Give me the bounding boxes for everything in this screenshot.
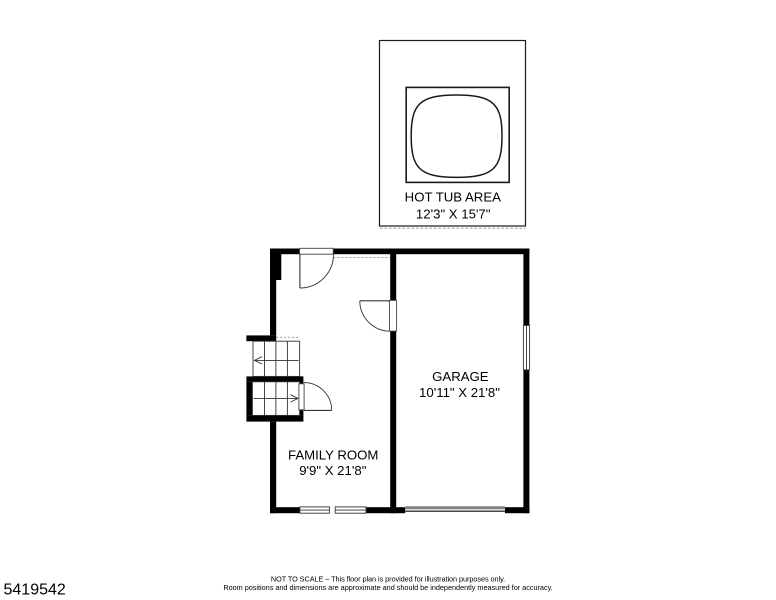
svg-text:Room positions and dimensions: Room positions and dimensions are approx… [223,583,552,592]
svg-text:12'3" X 15'7": 12'3" X 15'7" [416,207,491,222]
svg-text:FAMILY ROOM: FAMILY ROOM [288,447,378,462]
svg-text:HOT TUB AREA: HOT TUB AREA [405,190,501,205]
svg-text:10'11" X 21'8": 10'11" X 21'8" [419,385,500,400]
svg-text:9'9" X 21'8": 9'9" X 21'8" [299,463,367,478]
svg-text:GARAGE: GARAGE [432,369,489,384]
svg-text:5419542: 5419542 [4,582,66,599]
